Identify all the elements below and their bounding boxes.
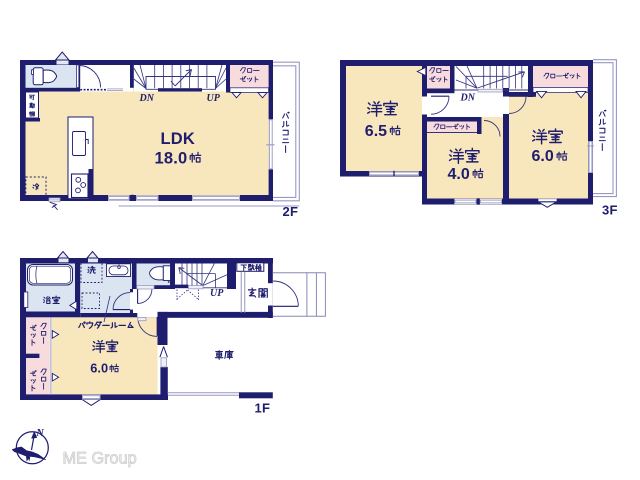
svg-text:DN: DN xyxy=(460,92,476,103)
svg-text:LDK: LDK xyxy=(161,130,196,148)
svg-text:1F: 1F xyxy=(255,401,271,416)
svg-text:DN: DN xyxy=(139,93,155,104)
svg-text:UP: UP xyxy=(207,93,221,104)
svg-text:4.0: 4.0 xyxy=(448,166,470,183)
svg-text:6.5: 6.5 xyxy=(365,123,387,140)
svg-text:UP: UP xyxy=(210,288,224,299)
svg-text:ME Group: ME Group xyxy=(63,450,137,468)
svg-text:3F: 3F xyxy=(602,202,618,217)
svg-text:6.0: 6.0 xyxy=(90,360,108,375)
svg-text:2F: 2F xyxy=(283,204,299,219)
svg-text:18.0: 18.0 xyxy=(155,149,188,167)
svg-text:6.0: 6.0 xyxy=(532,148,554,165)
